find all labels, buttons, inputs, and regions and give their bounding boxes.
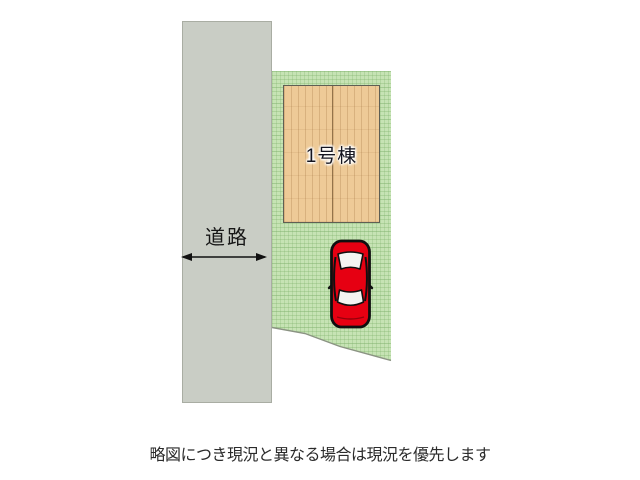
site-plan-canvas: 1号棟 道路 略図につき現況と異なる場合は現況を優先します	[0, 0, 640, 480]
road-width-arrow-icon	[179, 250, 269, 264]
building: 1号棟	[283, 85, 380, 223]
road-area	[182, 21, 272, 403]
disclaimer-text: 略図につき現況と異なる場合は現況を優先します	[0, 441, 640, 465]
car-icon	[326, 238, 375, 331]
building-label: 1号棟	[306, 141, 358, 168]
road-label: 道路	[182, 227, 272, 249]
